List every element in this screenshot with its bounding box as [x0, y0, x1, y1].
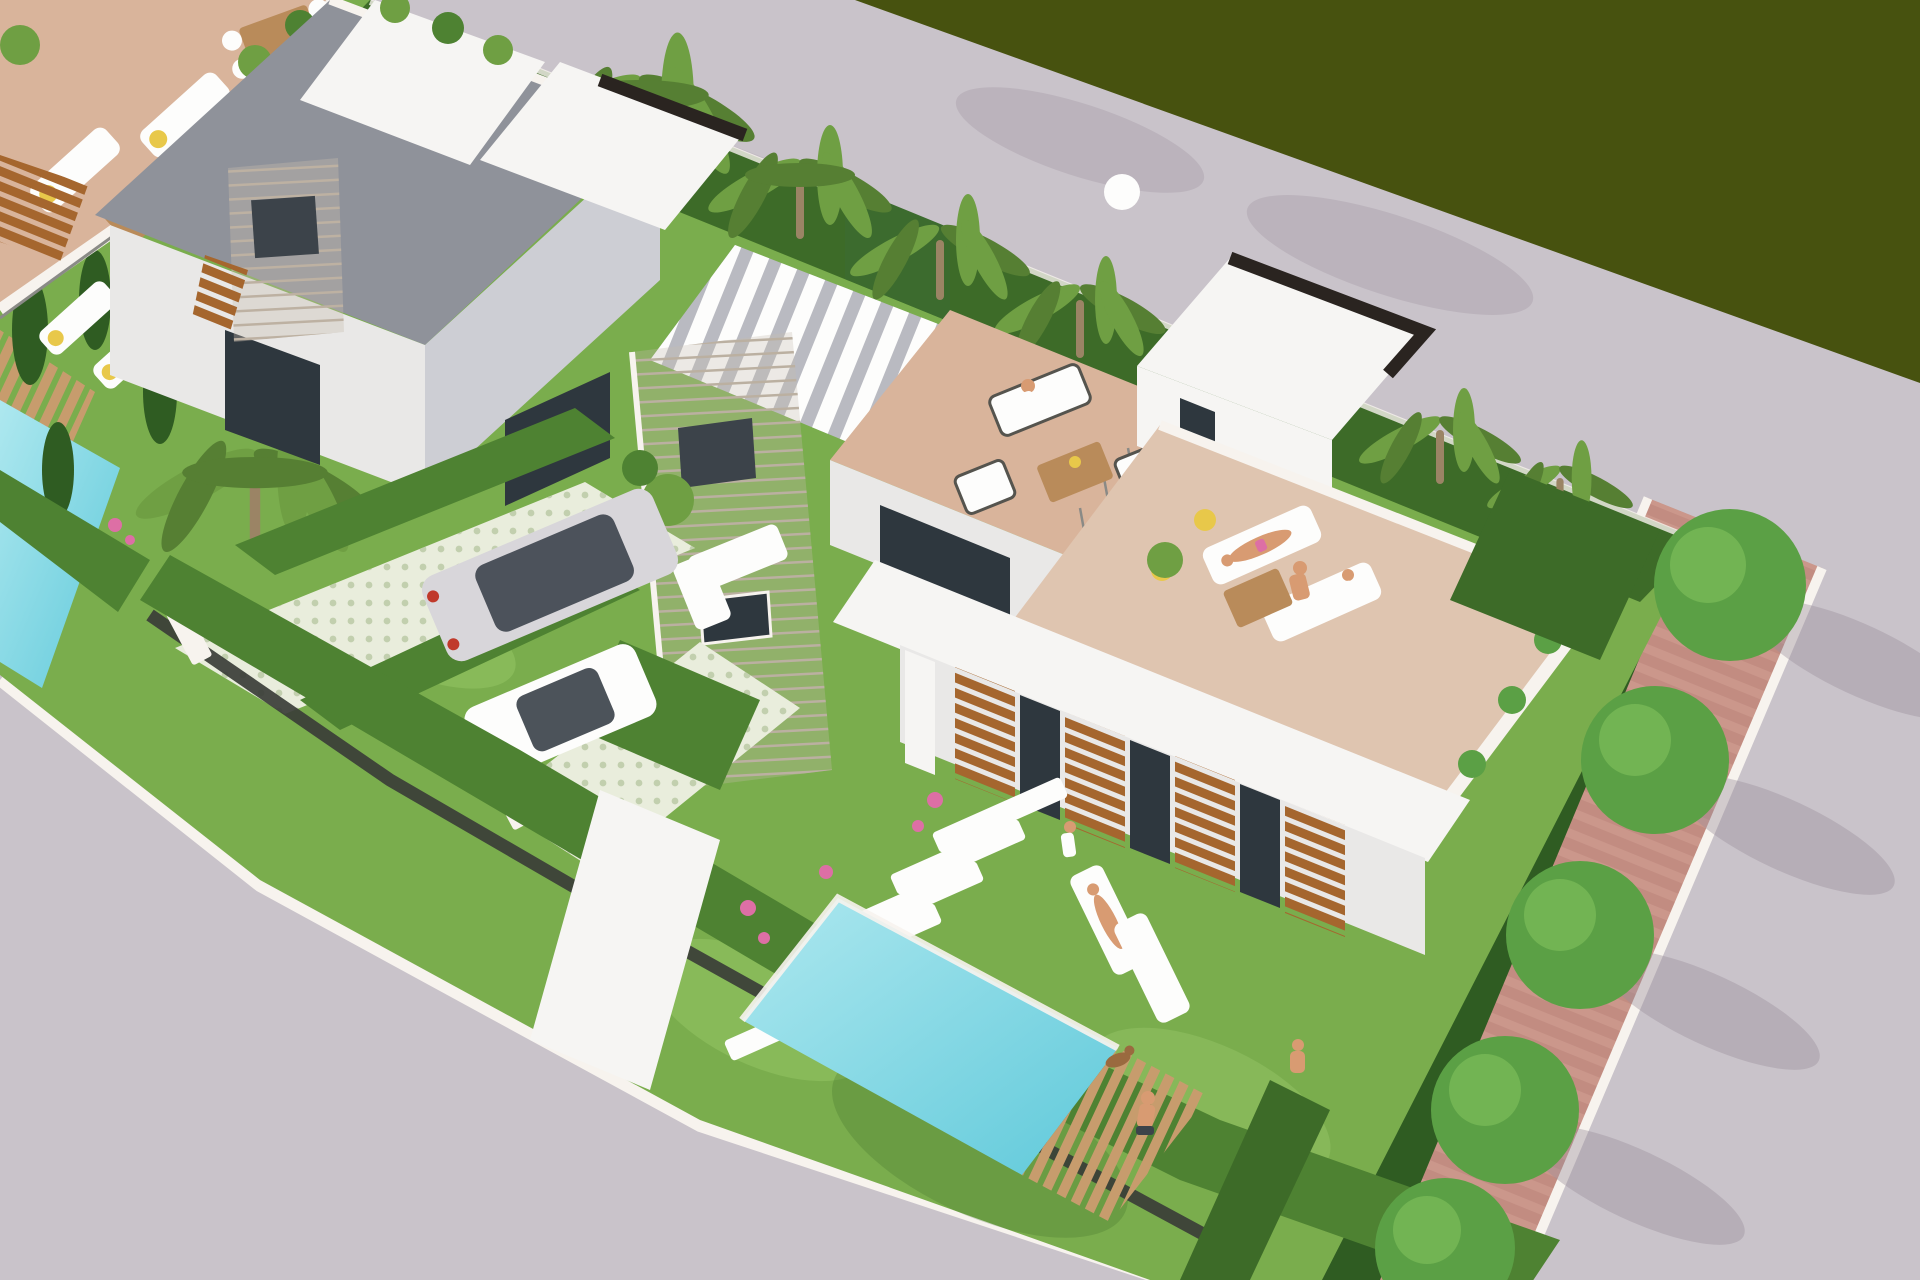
street-tree [1431, 1036, 1579, 1184]
person-in-garden [1290, 1039, 1305, 1073]
person-torso [1290, 1051, 1305, 1073]
parapet-plant [1498, 686, 1526, 714]
pink-flowers [758, 932, 770, 944]
pink-flowers [819, 865, 833, 879]
tower-vent-grille [678, 418, 756, 488]
palm-frond [182, 457, 328, 488]
wood-slat-shutter [1285, 801, 1345, 937]
wood-slat-shutter [1175, 756, 1235, 892]
chimney-vent-grille [251, 196, 319, 258]
parapet-plant [483, 35, 513, 65]
tree-canopy-highlight [1670, 527, 1746, 603]
tree-canopy-highlight [1524, 879, 1596, 951]
tree-canopy-highlight [1393, 1196, 1461, 1264]
wood-slat-shutter [955, 667, 1015, 803]
swim-shorts [1136, 1126, 1154, 1135]
person-head [1292, 1039, 1304, 1051]
street-tree [1654, 509, 1806, 661]
flower-vase [1069, 456, 1081, 468]
palm-trunk [936, 240, 944, 300]
palm-trunk [1436, 430, 1444, 484]
parapet-plant [1458, 750, 1486, 778]
palm-frond [745, 163, 855, 187]
glass-door [1130, 740, 1170, 864]
leafy-plant [622, 450, 658, 486]
pink-flowers [108, 518, 122, 532]
palm-trunk [1076, 300, 1084, 358]
person-head [1342, 569, 1354, 581]
tree-canopy-highlight [1599, 704, 1671, 776]
person-head [1293, 561, 1307, 575]
parapet-plant [432, 12, 464, 44]
pink-flowers [125, 535, 135, 545]
pink-flowers [912, 820, 924, 832]
street-tree [1581, 686, 1729, 834]
render-canvas: 12 [0, 0, 1920, 1280]
white-column [905, 650, 935, 775]
tree-canopy-highlight [1449, 1054, 1521, 1126]
person-head [1021, 379, 1035, 393]
potted-plant [0, 25, 40, 65]
white-sphere-dish [1104, 174, 1140, 210]
street-tree [1506, 861, 1654, 1009]
person-head [1141, 1091, 1155, 1105]
deck-plant [1147, 542, 1183, 578]
person-head [1064, 821, 1076, 833]
pink-flowers [927, 792, 943, 808]
glass-door [1240, 784, 1280, 908]
villa-render-scene: 12 [0, 0, 1920, 1280]
pink-flowers [740, 900, 756, 916]
towel-pillow [1194, 509, 1216, 531]
